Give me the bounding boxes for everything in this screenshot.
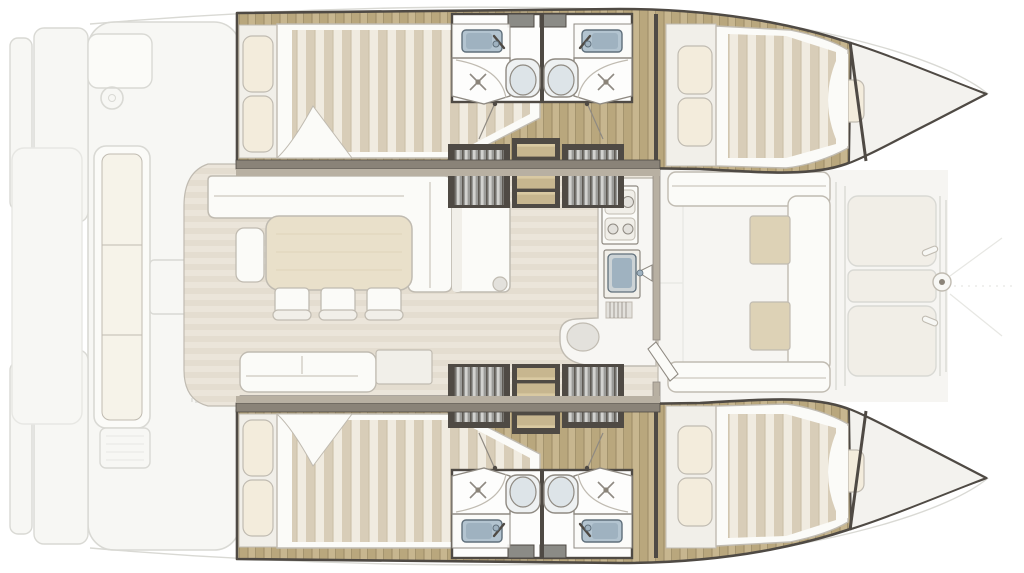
helm-seat — [88, 34, 152, 88]
burner — [623, 224, 633, 234]
bridle-lines — [950, 238, 1002, 336]
foredeck-center-pad — [848, 270, 936, 302]
chart-desk — [376, 350, 432, 384]
chair-back — [365, 310, 403, 320]
forestay-fitting-pin — [939, 279, 945, 285]
forward-cockpit-table-2 — [750, 302, 790, 350]
cockpit-bench-cushion — [102, 154, 142, 420]
salon-aft-sofa — [240, 352, 376, 392]
forward-bench-bottom — [668, 362, 830, 392]
faucet-base — [637, 270, 643, 276]
sun-pad-starboard — [848, 306, 936, 376]
dining-chairs — [273, 288, 403, 320]
sink-basin-inner — [612, 258, 632, 288]
salon-forward-wall-upper — [653, 168, 660, 340]
chair-back — [319, 310, 357, 320]
salon-side-bench — [236, 228, 264, 282]
forward-cockpit-table-1 — [750, 216, 790, 264]
island-knob — [493, 277, 507, 291]
burner — [623, 197, 634, 208]
forward-bench-side — [788, 196, 830, 372]
floor-plan-canvas: Catamaran interior layout — top-view flo… — [0, 0, 1024, 573]
dining-table — [266, 216, 412, 290]
galley-round-basin — [567, 323, 599, 351]
chair-back — [273, 310, 311, 320]
sun-pad-port — [848, 196, 936, 266]
foredeck: Foredeck — two sun pads, forestay fittin… — [848, 196, 1014, 376]
galley-island-front — [452, 198, 462, 292]
burner — [608, 224, 618, 234]
steering-wheel-hub — [109, 95, 116, 102]
catamaran-floor-plan: Catamaran interior layout — top-view flo… — [0, 0, 1024, 573]
swim-platform — [12, 148, 82, 424]
cockpit-grill — [100, 428, 150, 468]
